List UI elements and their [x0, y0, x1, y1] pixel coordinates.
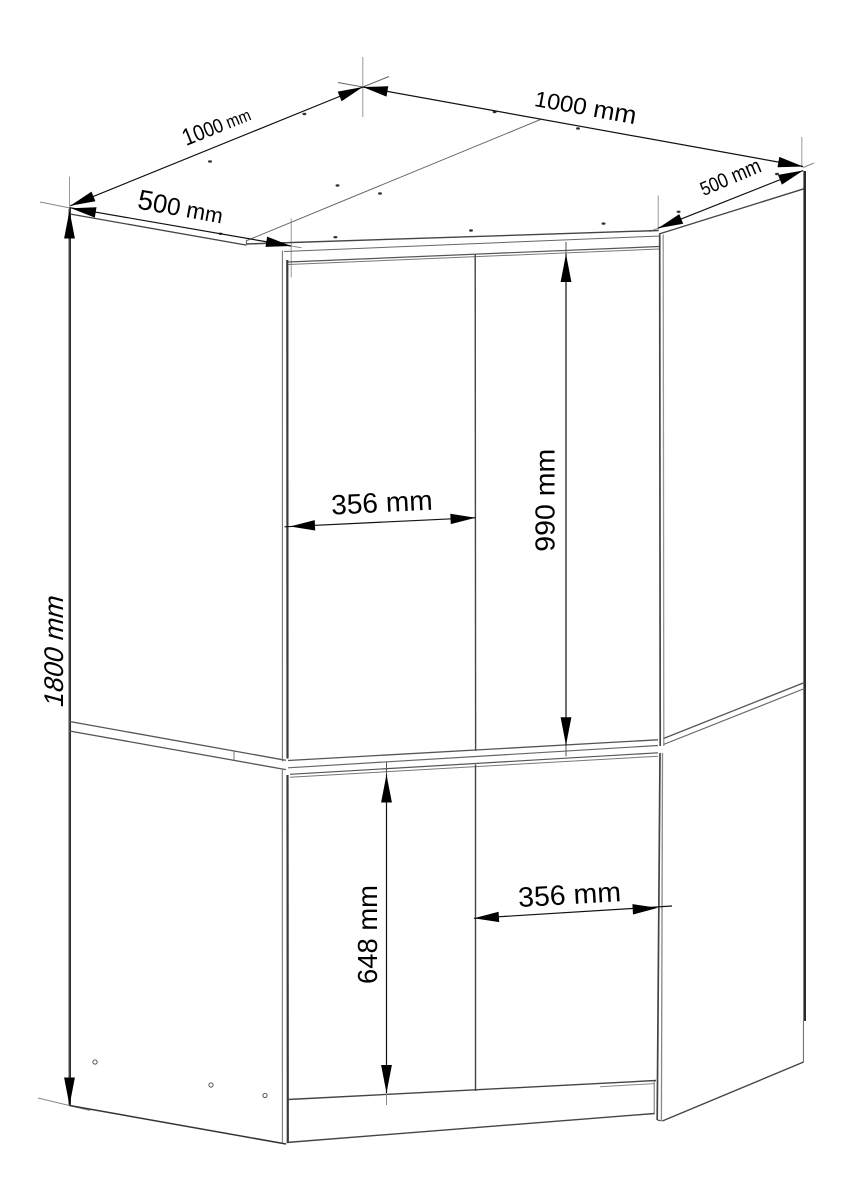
svg-text:648 mm: 648 mm: [352, 885, 383, 984]
svg-text:1800 mm: 1800 mm: [38, 591, 68, 710]
svg-text:356 mm: 356 mm: [330, 485, 433, 521]
svg-text:990 mm: 990 mm: [530, 449, 561, 552]
svg-text:356 mm: 356 mm: [517, 876, 622, 913]
